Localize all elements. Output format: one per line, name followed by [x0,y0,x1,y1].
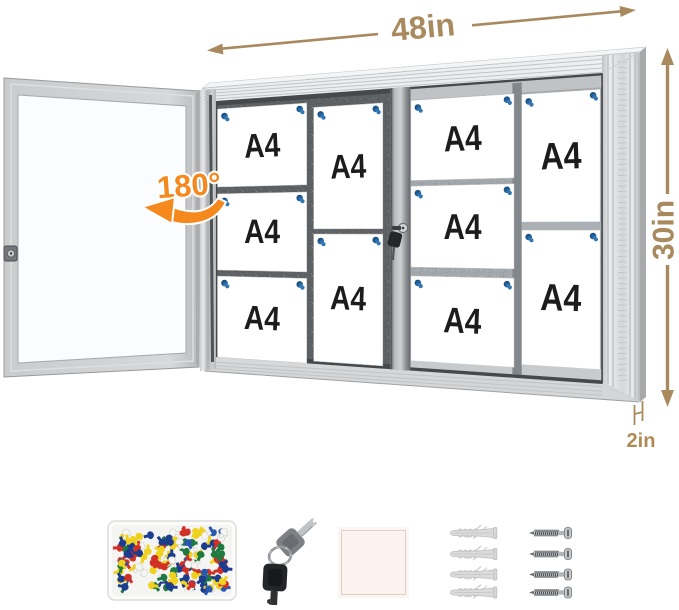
svg-text:2in: 2in [627,430,656,452]
svg-text:A4: A4 [243,126,281,166]
svg-text:A4: A4 [243,299,281,339]
svg-text:A4: A4 [540,277,582,320]
svg-text:30in: 30in [648,200,679,260]
svg-text:A4: A4 [540,135,582,178]
svg-text:A4: A4 [443,299,483,342]
svg-text:48in: 48in [389,6,456,48]
svg-text:A4: A4 [443,206,481,247]
svg-text:A4: A4 [443,117,483,160]
svg-text:A4: A4 [330,279,367,318]
svg-text:A4: A4 [244,213,280,251]
svg-text:A4: A4 [330,147,367,186]
